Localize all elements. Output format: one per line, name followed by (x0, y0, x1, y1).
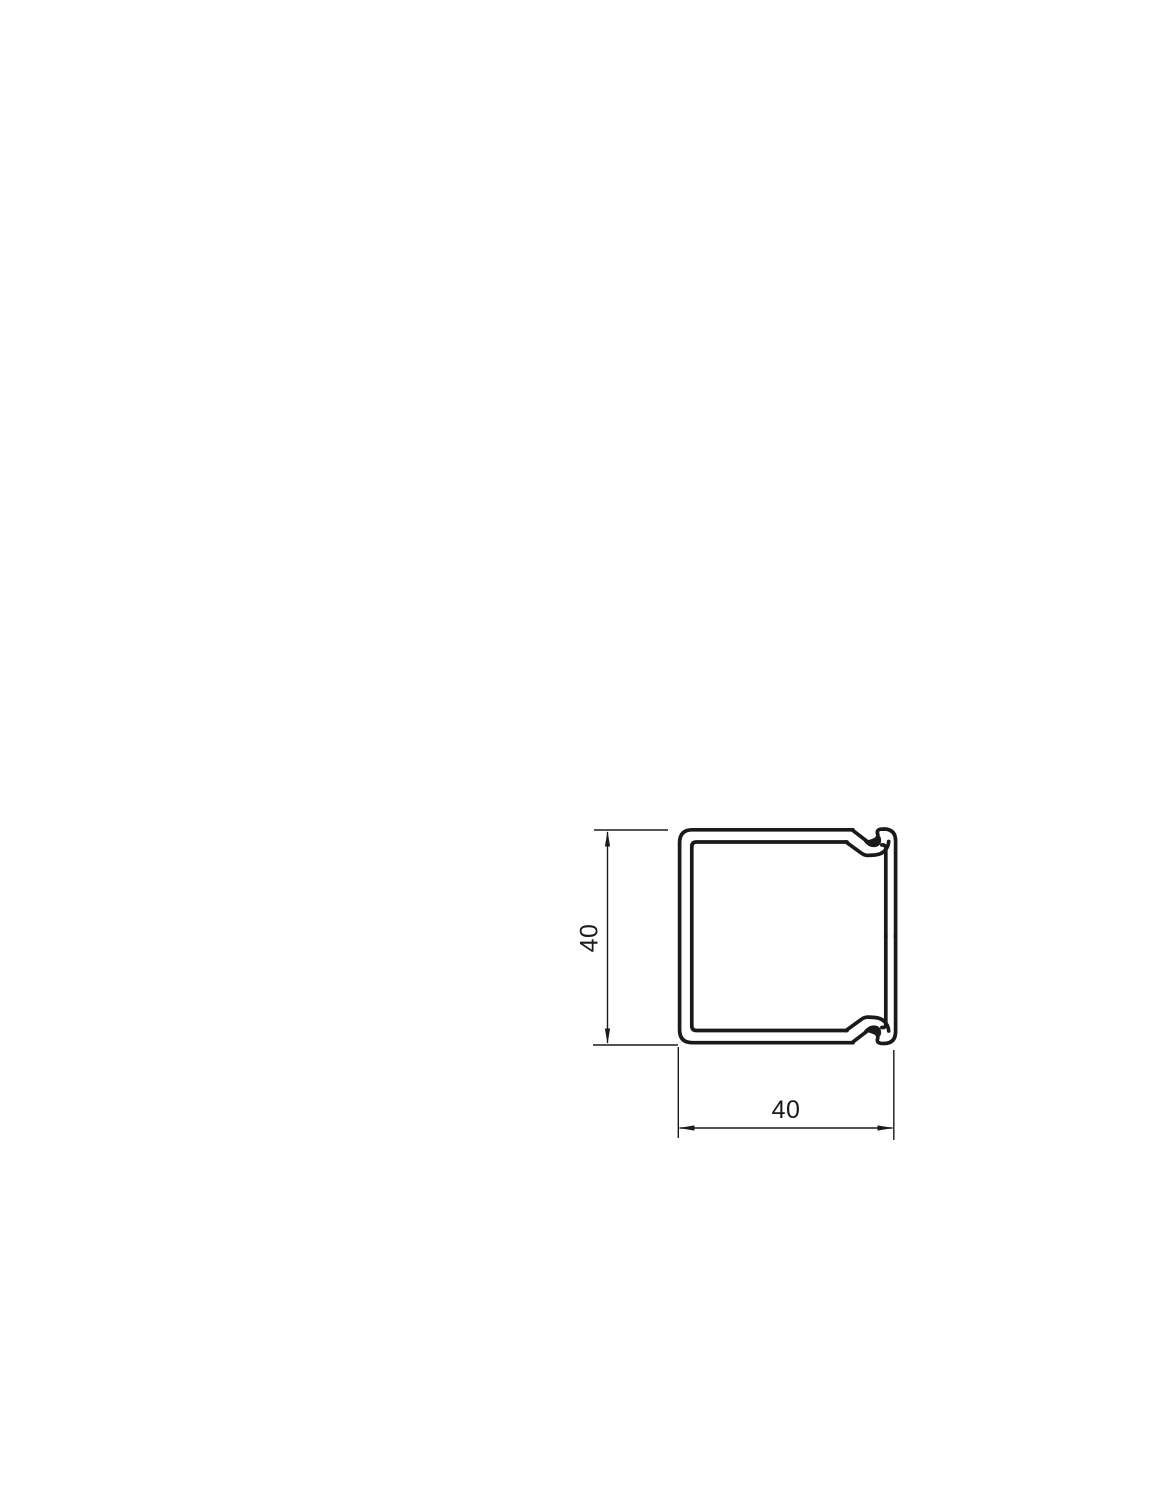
height-arrow-down (605, 1029, 610, 1045)
drawing-page: 40 40 (0, 0, 1159, 1500)
width-dimension-label: 40 (772, 1096, 801, 1124)
latch-bottom-right (846, 936, 896, 1044)
height-dimension-label: 40 (576, 924, 604, 953)
technical-drawing: 40 40 (0, 0, 1159, 1500)
latch-interlock-tip (865, 837, 881, 847)
dimension-height: 40 (576, 830, 679, 1045)
lid-inner-upper (882, 845, 886, 937)
width-arrow-right (878, 1125, 894, 1130)
height-arrow-up (605, 831, 610, 847)
duct-body (680, 830, 853, 1043)
width-arrow-left (679, 1125, 695, 1130)
body-inner-contour (692, 842, 847, 1031)
latch-top-right (846, 829, 896, 937)
dimension-width: 40 (678, 1047, 894, 1140)
body-outer-contour (680, 830, 853, 1043)
